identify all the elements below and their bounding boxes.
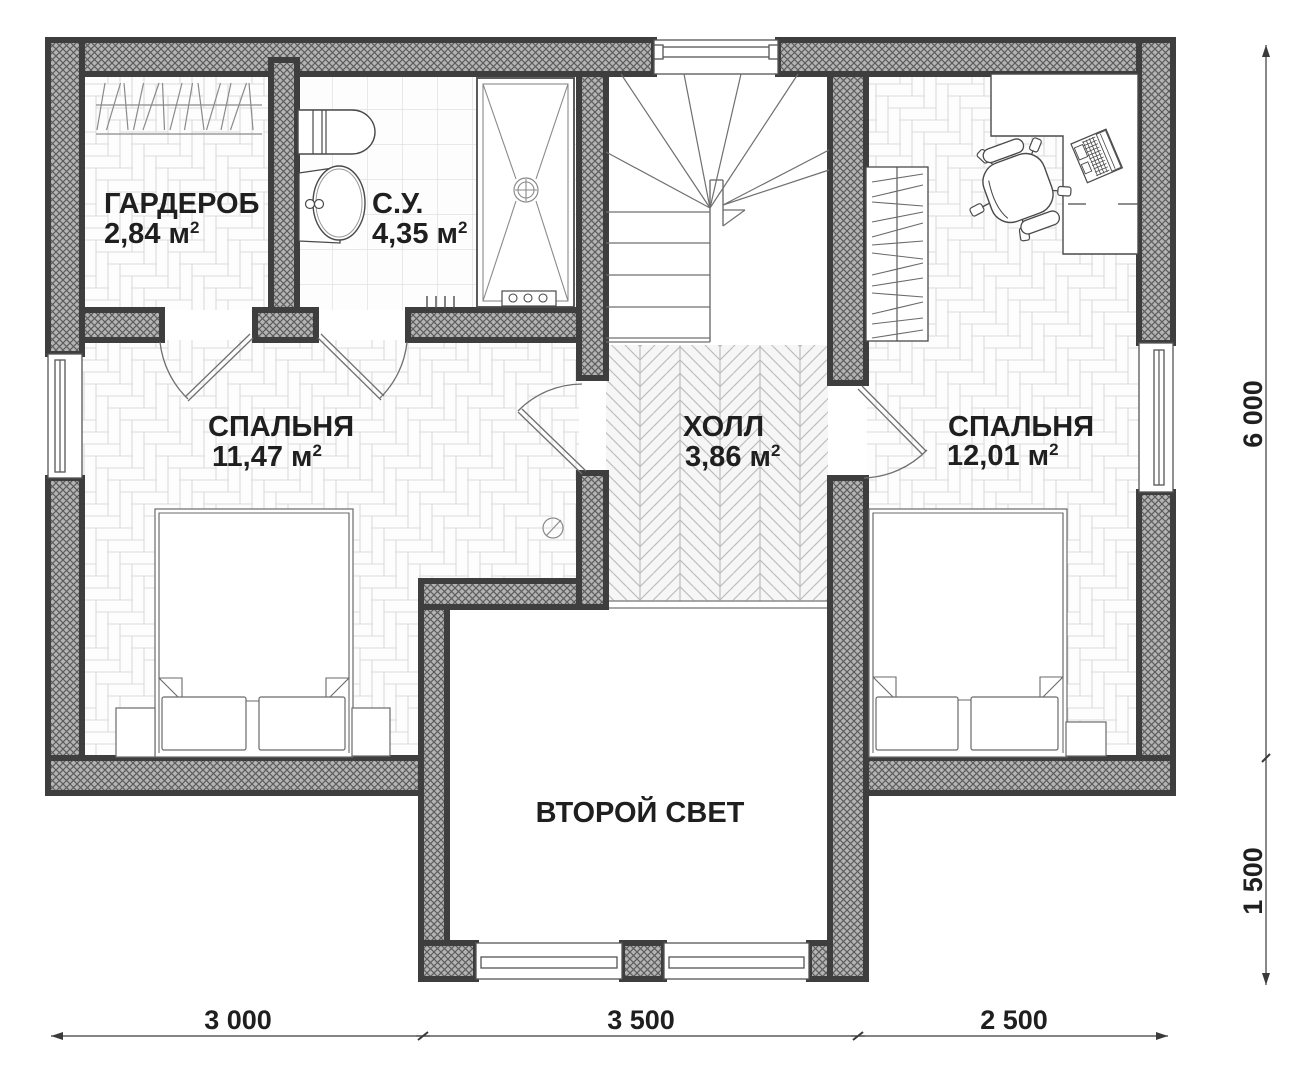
svg-text:1 500: 1 500 [1238,847,1268,915]
svg-text:3 000: 3 000 [204,1005,272,1035]
svg-text:3 500: 3 500 [607,1005,675,1035]
svg-text:2,84 м2: 2,84 м2 [104,218,199,250]
svg-text:СПАЛЬНЯ: СПАЛЬНЯ [948,411,1094,443]
svg-text:4,35 м2: 4,35 м2 [372,218,467,250]
svg-text:ВТОРОЙ СВЕТ: ВТОРОЙ СВЕТ [536,795,745,829]
svg-text:СПАЛЬНЯ: СПАЛЬНЯ [208,411,354,443]
svg-text:12,01 м2: 12,01 м2 [947,440,1059,472]
svg-text:11,47 м2: 11,47 м2 [212,441,322,473]
svg-text:2 500: 2 500 [980,1005,1048,1035]
svg-text:С.У.: С.У. [372,188,423,220]
svg-text:6 000: 6 000 [1238,380,1268,448]
svg-text:ХОЛЛ: ХОЛЛ [683,411,764,443]
svg-text:ГАРДЕРОБ: ГАРДЕРОБ [104,188,259,220]
svg-text:3,86 м2: 3,86 м2 [685,441,780,473]
